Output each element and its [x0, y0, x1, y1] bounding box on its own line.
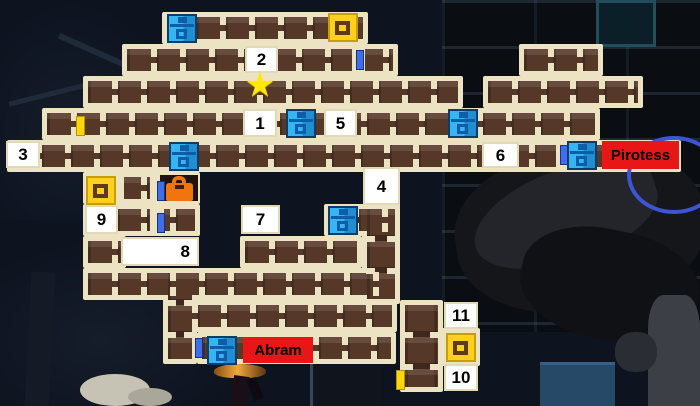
cell-separator: [413, 144, 419, 153]
corridor-floor: [405, 305, 438, 387]
cell-separator: [307, 16, 313, 25]
cell-separator: [355, 159, 361, 168]
cell-separator: [355, 144, 361, 153]
corridor-floor: [488, 81, 638, 103]
cell-separator: [152, 159, 158, 168]
cell-separator: [184, 332, 193, 338]
cell-separator: [151, 63, 157, 72]
cell-separator: [390, 127, 396, 136]
interior-wall: [116, 172, 124, 204]
cell-separator: [535, 112, 541, 121]
cell-separator: [167, 300, 176, 306]
cell-separator: [228, 272, 234, 281]
cell-separator: [112, 80, 118, 89]
cell-separator: [402, 95, 408, 104]
cell-separator: [180, 63, 186, 72]
cell-separator: [315, 95, 321, 104]
cell-separator: [326, 159, 332, 168]
cell-separator: [382, 223, 388, 232]
cell-separator: [541, 95, 547, 104]
cell-separator: [112, 240, 118, 249]
blue-chest-icon: [328, 206, 358, 235]
map-room-4: 4: [363, 167, 400, 205]
gold-chest-icon: [328, 13, 358, 42]
cell-separator: [296, 48, 302, 57]
cell-separator: [286, 272, 292, 281]
cell-separator: [344, 95, 350, 104]
cell-separator: [366, 236, 375, 242]
cell-separator: [599, 80, 605, 89]
cell-separator: [402, 80, 408, 89]
cell-separator: [65, 159, 71, 168]
cell-separator: [337, 319, 343, 328]
cell-separator: [404, 332, 413, 338]
cell-separator: [599, 95, 605, 104]
cell-separator: [112, 272, 118, 281]
cell-separator: [184, 300, 193, 306]
cell-separator: [307, 31, 313, 40]
cell-separator: [94, 159, 100, 168]
cell-separator: [382, 208, 388, 217]
cell-separator: [315, 80, 321, 89]
cell-separator: [313, 336, 319, 345]
cell-separator: [249, 16, 255, 25]
cell-separator: [298, 240, 304, 249]
cell-separator: [342, 336, 348, 345]
cell-separator: [210, 144, 216, 153]
cell-separator: [286, 287, 292, 296]
cell-separator: [141, 272, 147, 281]
cell-separator: [210, 159, 216, 168]
cell-separator: [239, 159, 245, 168]
cell-separator: [296, 63, 302, 72]
cell-separator: [94, 144, 100, 153]
cell-separator: [327, 255, 333, 264]
cell-separator: [257, 272, 263, 281]
cell-separator: [577, 63, 583, 72]
cell-separator: [564, 112, 570, 121]
cell-separator: [570, 80, 576, 89]
cell-separator: [216, 112, 222, 121]
cell-separator: [180, 48, 186, 57]
cell-separator: [297, 144, 303, 153]
cell-separator: [529, 144, 535, 153]
cell-separator: [278, 16, 284, 25]
cell-separator: [471, 159, 477, 168]
cell-separator: [628, 95, 634, 104]
cell-separator: [298, 255, 304, 264]
gold-chest-icon: [446, 333, 476, 362]
cell-separator: [199, 287, 205, 296]
cell-separator: [228, 287, 234, 296]
cell-separator: [141, 191, 147, 200]
cell-separator: [123, 159, 129, 168]
cell-separator: [371, 336, 377, 345]
cell-separator: [431, 95, 437, 104]
cell-separator: [192, 319, 198, 328]
cell-separator: [371, 351, 377, 360]
cell-separator: [249, 31, 255, 40]
cell-separator: [152, 144, 158, 153]
cell-separator: [209, 48, 215, 57]
cell-separator: [269, 255, 275, 264]
cell-separator: [278, 31, 284, 40]
cell-separator: [239, 144, 245, 153]
cell-separator: [216, 127, 222, 136]
cell-separator: [442, 159, 448, 168]
blue-door-icon: [195, 338, 203, 358]
cell-separator: [151, 48, 157, 57]
cell-separator: [529, 159, 535, 168]
cell-separator: [387, 268, 396, 274]
orange-bag-icon: [164, 176, 196, 202]
cell-separator: [548, 48, 554, 57]
cell-separator: [361, 112, 367, 121]
cell-separator: [167, 332, 176, 338]
corridor-floor: [168, 273, 192, 359]
cell-separator: [430, 364, 439, 370]
cell-separator: [279, 319, 285, 328]
cell-separator: [141, 287, 147, 296]
map-room-5: 5: [324, 109, 357, 137]
cell-separator: [315, 287, 321, 296]
cell-separator: [308, 304, 314, 313]
cell-separator: [327, 240, 333, 249]
cell-separator: [471, 144, 477, 153]
cell-separator: [141, 208, 147, 217]
cell-separator: [366, 304, 372, 313]
cell-separator: [112, 95, 118, 104]
map-room-3: 3: [6, 141, 40, 168]
cell-separator: [250, 319, 256, 328]
cell-separator: [286, 80, 292, 89]
blue-door-icon: [157, 213, 165, 233]
cell-separator: [344, 80, 350, 89]
blue-door-icon: [356, 50, 364, 70]
gold-chest-icon: [86, 176, 116, 205]
npc-label-pirotess: Pirotess: [602, 141, 679, 169]
cell-separator: [419, 112, 425, 121]
cell-separator: [170, 80, 176, 89]
blue-chest-icon: [286, 109, 316, 138]
cell-separator: [250, 304, 256, 313]
yellow-door-icon: [76, 116, 85, 136]
npc-label-abram: Abram: [243, 337, 313, 363]
cell-separator: [112, 255, 118, 264]
cell-separator: [506, 112, 512, 121]
cell-separator: [100, 127, 106, 136]
cell-separator: [170, 272, 176, 281]
cell-separator: [373, 95, 379, 104]
cell-separator: [228, 95, 234, 104]
cell-separator: [220, 31, 226, 40]
cell-separator: [344, 287, 350, 296]
cell-separator: [170, 95, 176, 104]
cell-separator: [297, 159, 303, 168]
cell-separator: [65, 144, 71, 153]
cell-separator: [541, 80, 547, 89]
cell-separator: [325, 48, 331, 57]
blue-chest-icon: [167, 14, 197, 43]
corridor-floor: [524, 49, 598, 71]
map-room-9: 9: [85, 205, 118, 234]
cell-separator: [387, 236, 396, 242]
cell-separator: [383, 48, 389, 57]
cell-separator: [373, 80, 379, 89]
cell-separator: [129, 112, 135, 121]
cell-separator: [141, 223, 147, 232]
cell-separator: [220, 16, 226, 25]
cell-separator: [431, 80, 437, 89]
cell-separator: [141, 176, 147, 185]
cell-separator: [506, 127, 512, 136]
cell-separator: [512, 80, 518, 89]
cell-separator: [308, 319, 314, 328]
cell-separator: [344, 272, 350, 281]
map-room-8: 8: [121, 237, 199, 266]
blue-door-icon: [560, 145, 568, 165]
cell-separator: [199, 80, 205, 89]
cell-separator: [564, 127, 570, 136]
map-room-11: 11: [444, 302, 478, 329]
cell-separator: [325, 63, 331, 72]
cell-separator: [158, 112, 164, 121]
cell-separator: [383, 63, 389, 72]
cell-separator: [112, 287, 118, 296]
cell-separator: [209, 63, 215, 72]
blue-chest-icon: [448, 109, 478, 138]
star-icon: ★: [243, 70, 277, 104]
cell-separator: [315, 272, 321, 281]
cell-separator: [366, 319, 372, 328]
cell-separator: [141, 80, 147, 89]
cell-separator: [413, 159, 419, 168]
cell-separator: [326, 144, 332, 153]
cell-separator: [269, 240, 275, 249]
blue-chest-icon: [207, 336, 237, 365]
cell-separator: [373, 287, 379, 296]
cell-separator: [257, 287, 263, 296]
game-map-screen[interactable]: 2153647981110★PirotessAbram: [0, 0, 700, 406]
cell-separator: [199, 272, 205, 281]
cell-separator: [577, 48, 583, 57]
cell-separator: [170, 223, 176, 232]
cell-separator: [313, 351, 319, 360]
map-room-1: 1: [243, 109, 277, 137]
blue-chest-icon: [567, 141, 597, 170]
cell-separator: [170, 287, 176, 296]
cell-separator: [187, 112, 193, 121]
cell-separator: [512, 95, 518, 104]
cell-separator: [404, 364, 413, 370]
cell-separator: [628, 80, 634, 89]
map-room-7: 7: [241, 205, 280, 234]
blue-door-icon: [157, 181, 165, 201]
cell-separator: [199, 95, 205, 104]
cell-separator: [170, 208, 176, 217]
dungeon-map-overlay: 2153647981110★PirotessAbram: [0, 0, 700, 406]
cell-separator: [570, 95, 576, 104]
cell-separator: [279, 304, 285, 313]
cell-separator: [123, 144, 129, 153]
cell-separator: [390, 112, 396, 121]
cell-separator: [286, 95, 292, 104]
map-room-6: 6: [482, 142, 519, 168]
cell-separator: [238, 48, 244, 57]
cell-separator: [548, 63, 554, 72]
corridor-floor: [367, 209, 395, 299]
yellow-door-icon: [396, 370, 405, 390]
cell-separator: [141, 95, 147, 104]
cell-separator: [384, 144, 390, 153]
cell-separator: [129, 127, 135, 136]
cell-separator: [342, 351, 348, 360]
cell-separator: [535, 127, 541, 136]
cell-separator: [268, 159, 274, 168]
cell-separator: [419, 127, 425, 136]
cell-separator: [442, 144, 448, 153]
cell-separator: [158, 127, 164, 136]
cell-separator: [228, 80, 234, 89]
cell-separator: [430, 332, 439, 338]
cell-separator: [187, 127, 193, 136]
cell-separator: [221, 304, 227, 313]
cell-separator: [361, 127, 367, 136]
cell-separator: [268, 144, 274, 153]
blue-chest-icon: [169, 142, 199, 171]
cell-separator: [337, 304, 343, 313]
map-room-10: 10: [444, 364, 478, 391]
cell-separator: [366, 268, 375, 274]
cell-separator: [100, 112, 106, 121]
cell-separator: [221, 319, 227, 328]
